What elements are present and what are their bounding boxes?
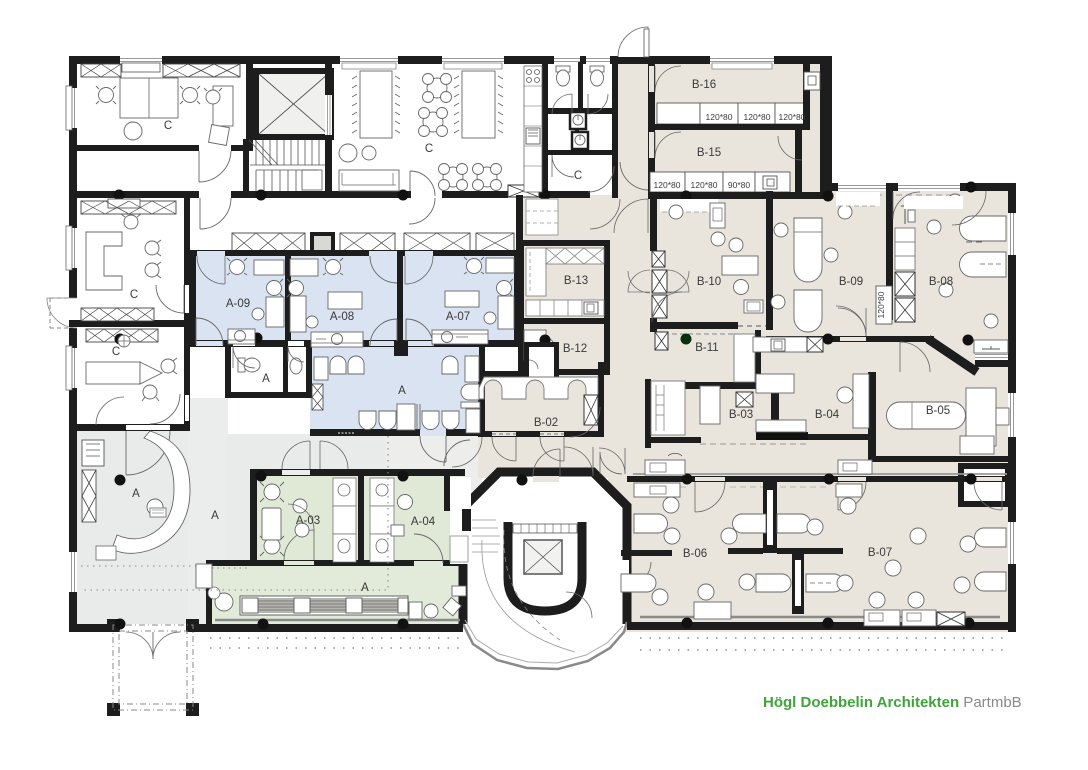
svg-text:B-16: B-16 [692,79,716,91]
svg-text:A: A [262,373,270,385]
svg-text:B-02: B-02 [534,417,558,429]
svg-text:A: A [132,488,140,500]
svg-text:C: C [164,120,172,132]
svg-text:120*80: 120*80 [876,291,886,318]
svg-text:120*80: 120*80 [654,180,681,190]
svg-text:A-04: A-04 [411,516,436,528]
svg-text:C: C [130,289,138,301]
svg-text:C: C [112,346,120,358]
svg-text:120*80: 120*80 [779,112,806,122]
svg-text:A-09: A-09 [226,298,250,310]
svg-text:A: A [398,385,406,397]
svg-text:C: C [574,170,582,182]
svg-text:B-08: B-08 [929,276,953,288]
svg-text:A-08: A-08 [330,311,354,323]
svg-text:B-07: B-07 [868,547,892,559]
svg-text:A: A [361,582,369,594]
svg-text:B-10: B-10 [697,276,721,288]
svg-text:Högl Doebbelin Architekten Par: Högl Doebbelin Architekten PartmbB [763,694,1022,711]
svg-text:B-12: B-12 [563,343,587,355]
svg-text:120*80: 120*80 [744,112,771,122]
svg-text:A-03: A-03 [296,515,320,527]
svg-text:A-07: A-07 [446,311,470,323]
svg-text:B-06: B-06 [683,548,707,560]
svg-text:A: A [211,510,219,522]
svg-text:B-11: B-11 [695,342,718,354]
svg-text:90*80: 90*80 [728,180,750,190]
svg-text:B-04: B-04 [815,409,840,421]
svg-text:B-03: B-03 [729,409,753,421]
svg-text:B-15: B-15 [697,147,721,159]
svg-text:B-05: B-05 [926,405,950,417]
svg-text:C: C [425,143,433,155]
svg-text:B-09: B-09 [839,276,863,288]
svg-text:B-13: B-13 [564,275,588,287]
svg-text:120*80: 120*80 [691,180,718,190]
svg-text:120*80: 120*80 [706,112,733,122]
